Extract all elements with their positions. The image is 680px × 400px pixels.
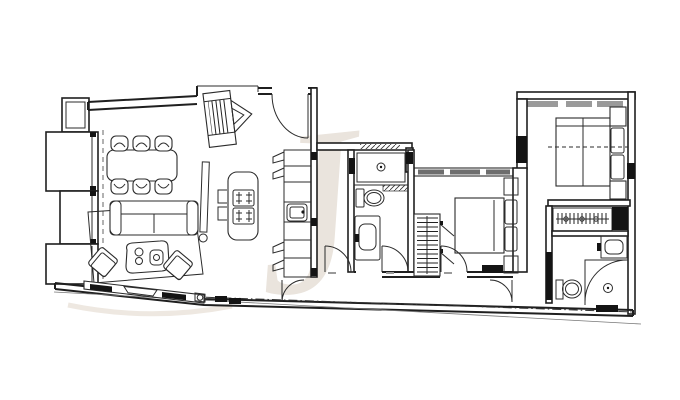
faucet: [597, 243, 601, 251]
master-bedroom: [548, 107, 630, 206]
radiator: [199, 162, 210, 242]
bed-master: [548, 107, 628, 199]
bed-2: [455, 178, 518, 273]
window-hatch-bath1: [360, 144, 400, 149]
hall-door-east-arc: [490, 280, 512, 302]
coffee-table: [126, 241, 169, 273]
nightstand: [610, 181, 626, 199]
wall-bath1-right: [408, 150, 414, 272]
window-glass: [486, 170, 510, 175]
faucet: [355, 234, 359, 242]
media-console: [84, 281, 205, 303]
closet-cabinet: [612, 207, 628, 230]
toilet: [356, 189, 384, 207]
wall-bath2-top: [552, 231, 628, 236]
wall-marker: [627, 163, 635, 179]
watermark-swash: [68, 305, 232, 314]
wardrobe-doors: [440, 224, 454, 264]
bath1-door-arc: [382, 246, 408, 272]
floor-plan-canvas: J: [0, 0, 680, 400]
window-glass: [418, 170, 444, 175]
master-bathroom: [552, 231, 628, 312]
pillow: [611, 128, 624, 153]
wall-bedroom-closet: [548, 200, 630, 206]
vanity-sink: [597, 236, 627, 258]
threshold-mark: [229, 298, 241, 304]
dining-set: [107, 136, 177, 194]
hangers: [557, 213, 607, 224]
pillow: [611, 155, 624, 179]
shower: [585, 260, 628, 312]
bar-stools: [218, 190, 227, 220]
threshold-mark: [215, 296, 227, 302]
wardrobe: [414, 214, 454, 276]
toilet: [556, 280, 582, 299]
wall-top-living: [88, 86, 197, 110]
wall-kitchen-spine: [311, 88, 317, 277]
kitchen-island: [218, 172, 258, 240]
tv: [482, 265, 503, 273]
dining-table: [107, 150, 177, 181]
floor-plan-page: J: [0, 0, 680, 400]
window-glass: [450, 170, 480, 175]
window-bay-1: [46, 132, 98, 191]
nightstand: [610, 107, 626, 126]
shower: [349, 150, 413, 191]
shower-door-arc: [585, 260, 627, 302]
pocket-door: [546, 252, 552, 300]
shower-walls: [585, 260, 628, 305]
bedroom-2: [414, 178, 518, 276]
sofa: [110, 201, 198, 235]
faucet: [301, 210, 304, 213]
structural-column: [516, 136, 527, 163]
shower-sill: [383, 185, 408, 191]
wall-top-master: [517, 92, 635, 99]
curtain-band: [527, 101, 623, 107]
threshold-mark: [596, 305, 618, 312]
